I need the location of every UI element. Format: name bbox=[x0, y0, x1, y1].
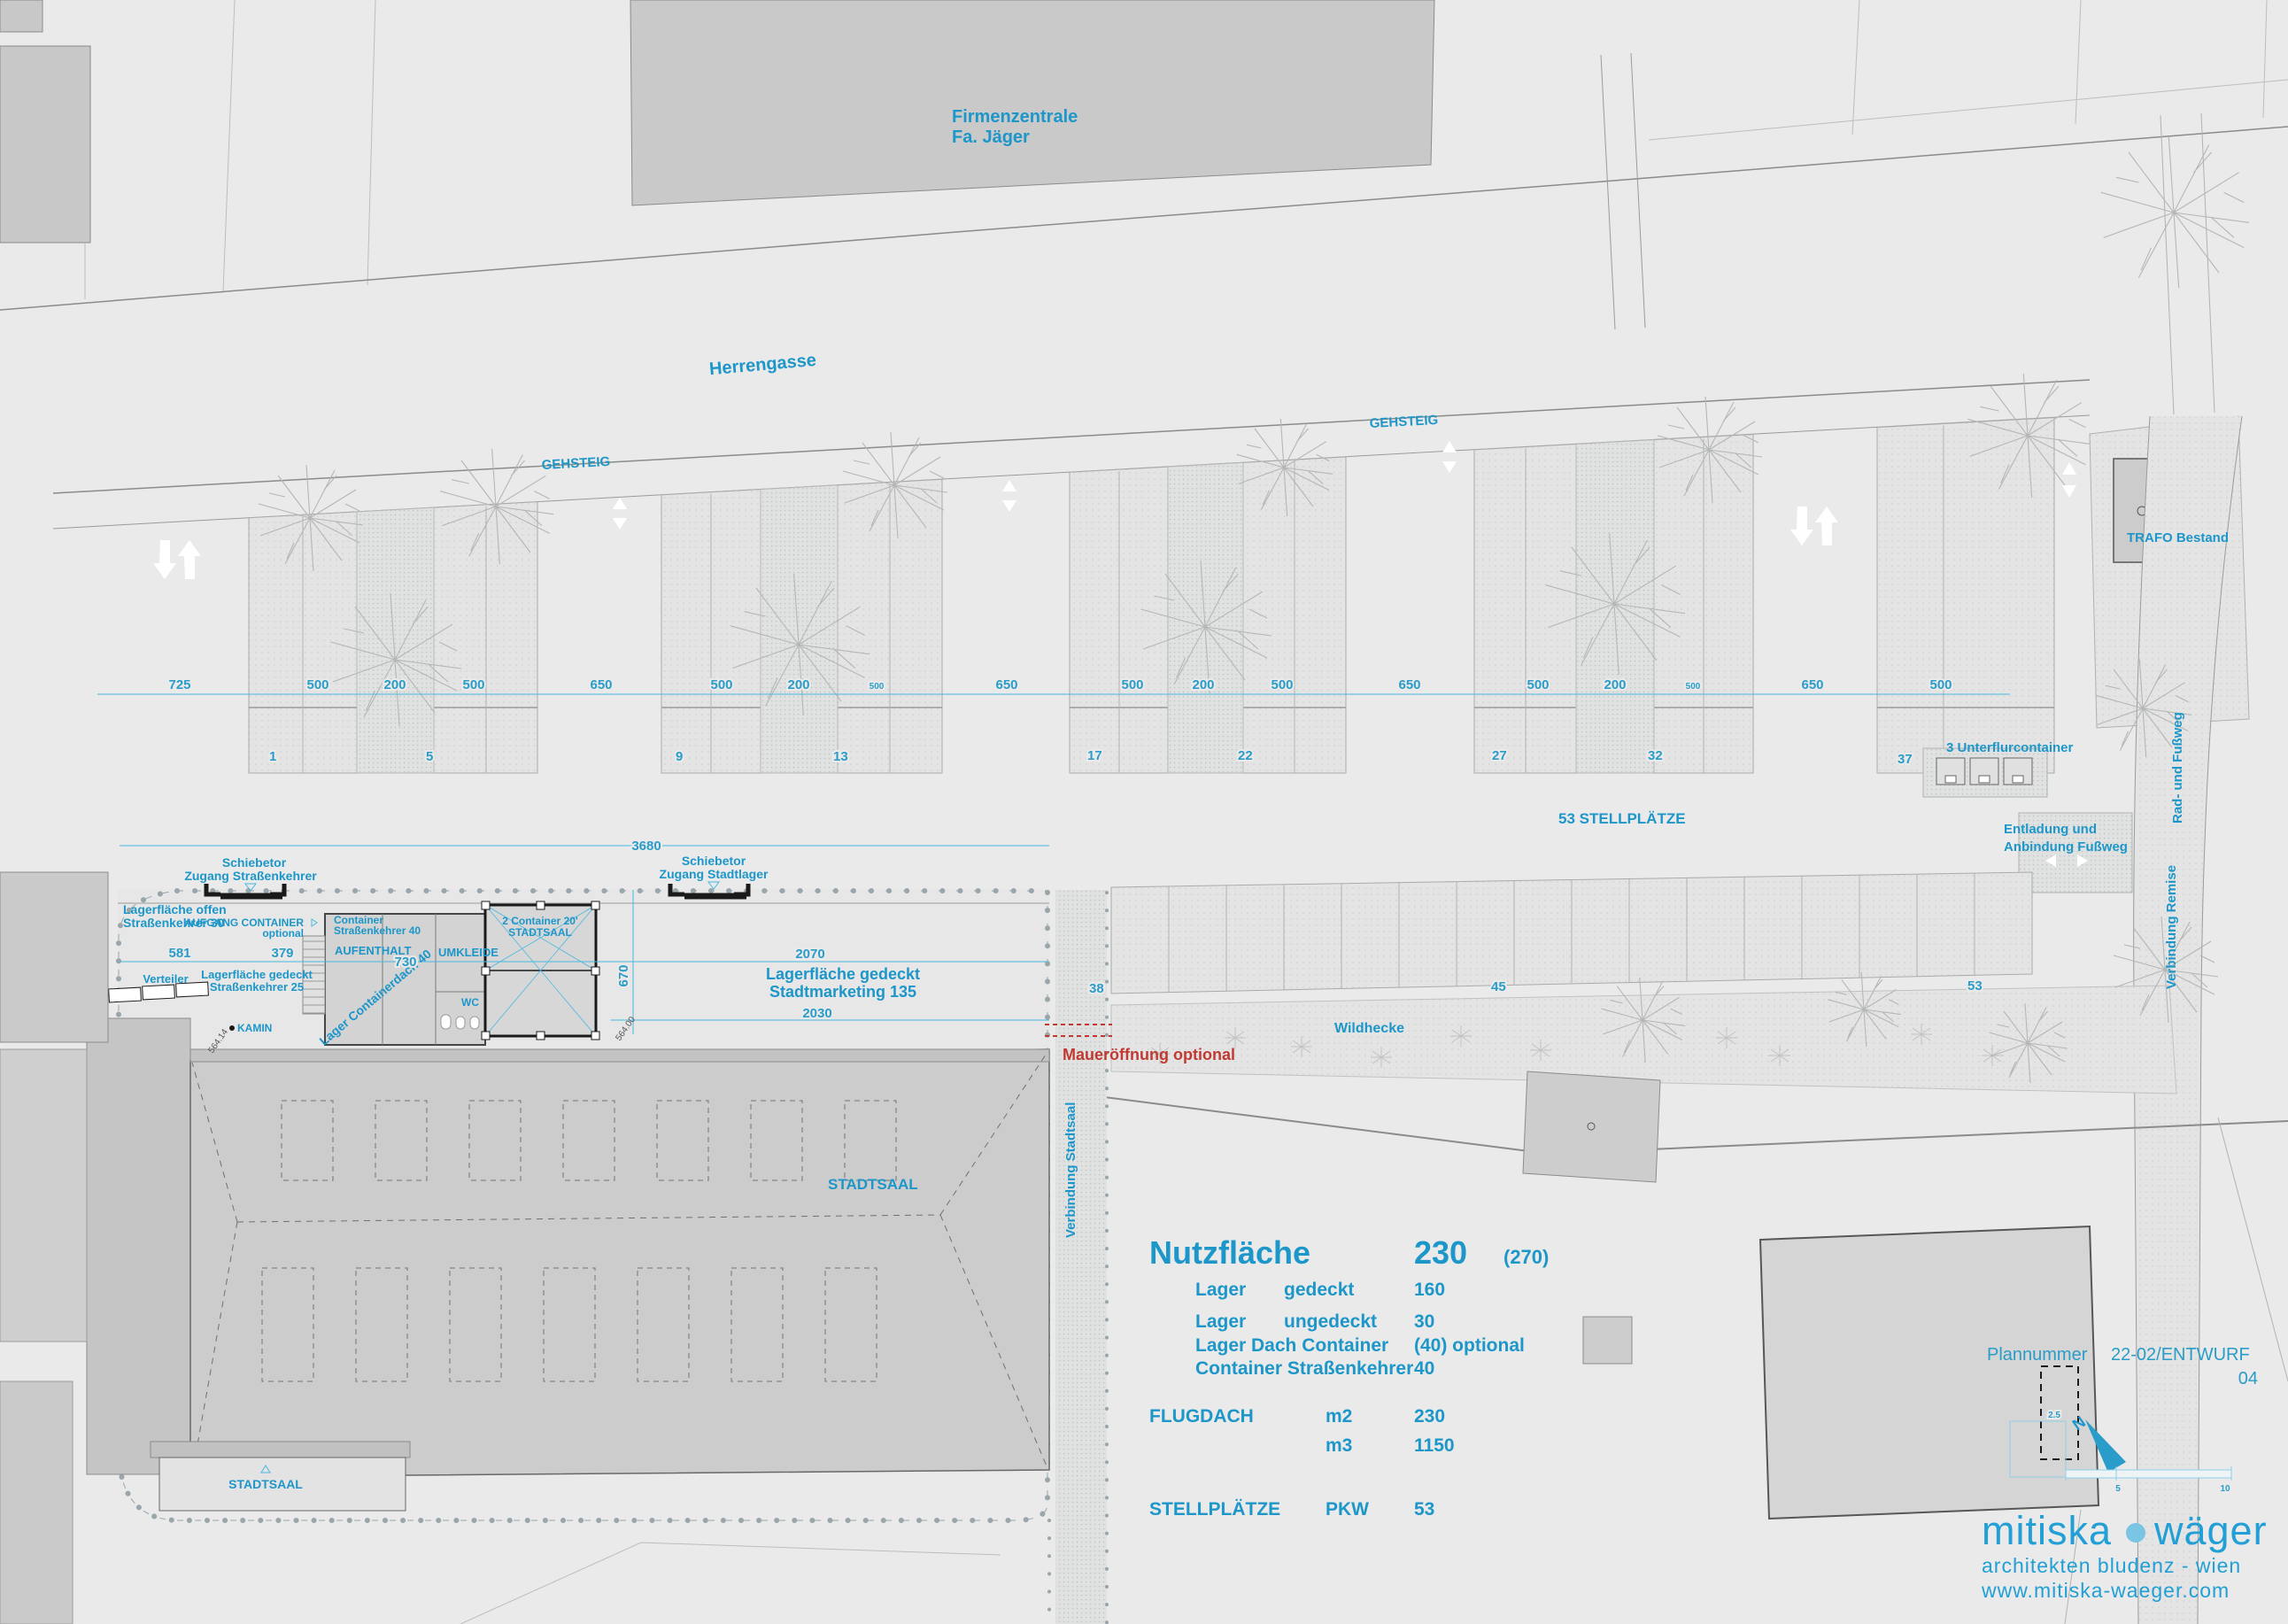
legend-block: Nutzfläche 230 (270) Lager gedeckt 160 L… bbox=[1149, 1234, 1549, 1520]
tree-strip bbox=[1168, 462, 1243, 773]
stall-number: 37 bbox=[1898, 752, 1913, 767]
stair-label-line2: optional bbox=[262, 927, 304, 940]
dimension-label: 500 bbox=[1121, 677, 1143, 692]
south-parking-row bbox=[1111, 872, 2032, 994]
dimension-label: 500 bbox=[1271, 677, 1293, 692]
stall-number: 13 bbox=[833, 749, 848, 764]
legend-row1-c3: 160 bbox=[1414, 1280, 1445, 1300]
parcel-lines-topright bbox=[1649, 0, 2288, 140]
gate2-label-line1: Schiebetor bbox=[682, 854, 746, 868]
legend-title-paren: (270) bbox=[1503, 1246, 1549, 1268]
dimension-label: 650 bbox=[1801, 677, 1823, 692]
arrow-down-icon bbox=[1790, 507, 1813, 545]
stall-number: 17 bbox=[1087, 748, 1102, 763]
company-label-line2: Fa. Jäger bbox=[952, 128, 1030, 147]
legend-flugdach-value2: 1150 bbox=[1414, 1435, 1455, 1456]
dimension-label: 500 bbox=[870, 682, 885, 692]
legend-flugdach-unit1: m2 bbox=[1326, 1406, 1352, 1427]
gate1-label-line2: Zugang Straßenkehrer bbox=[184, 869, 317, 883]
chimney-mark bbox=[229, 1025, 235, 1031]
legend-row4-c3: 40 bbox=[1414, 1358, 1434, 1379]
dimension-label: 500 bbox=[1527, 677, 1549, 692]
legend-title-value: 230 bbox=[1414, 1234, 1467, 1271]
south-stall-number: 45 bbox=[1491, 979, 1506, 994]
dimension-label: 200 bbox=[1604, 677, 1626, 692]
distributor-label: Verteiler bbox=[143, 972, 188, 986]
company-label-line1: Firmenzentrale bbox=[952, 107, 1078, 127]
arrow-up-small-icon bbox=[1002, 480, 1016, 491]
bike-path-label: Rad- und Fußweg bbox=[2170, 712, 2185, 824]
dimension-label: 200 bbox=[383, 677, 406, 692]
remise-label: Verbindung Remise bbox=[2164, 865, 2179, 989]
dimension-label: 725 bbox=[168, 677, 190, 692]
arrow-down-small-icon bbox=[1442, 461, 1457, 473]
logo-block: mitiska wäger architekten bludenz - wien… bbox=[1981, 1508, 2268, 1602]
covered-storage2-label-line2: Stadtmarketing 135 bbox=[769, 983, 916, 1001]
gate-marker-icon-2 bbox=[708, 882, 719, 889]
scale-mid-label: 5 bbox=[2115, 1484, 2121, 1494]
stall-number: 9 bbox=[676, 749, 683, 764]
dimension-label: 500 bbox=[710, 677, 732, 692]
tree-icon bbox=[2101, 137, 2249, 288]
dimension-label: 500 bbox=[1686, 682, 1701, 692]
building-west-3 bbox=[0, 1381, 73, 1624]
container-label-line2: Straßenkehrer 40 bbox=[334, 924, 421, 937]
legend-row2-c2: ungedeckt bbox=[1284, 1311, 1377, 1332]
covered-storage2-label-line1: Lagerfläche gedeckt bbox=[766, 965, 920, 983]
hall-link-label: Verbindung Stadtsaal bbox=[1063, 1102, 1078, 1238]
plan-number-label: Plannummer bbox=[1987, 1345, 2088, 1365]
legend-stellplaetze-unit: PKW bbox=[1326, 1499, 1369, 1520]
room-changing-label: UMKLEIDE bbox=[438, 946, 499, 959]
dim-379: 379 bbox=[271, 946, 293, 961]
legend-row1-c1: Lager bbox=[1195, 1280, 1246, 1300]
legend-row1-c2: gedeckt bbox=[1284, 1280, 1354, 1300]
arrow-down-icon bbox=[153, 540, 176, 579]
south-stall-number: 38 bbox=[1089, 981, 1104, 996]
arrow-up-icon bbox=[2062, 462, 2076, 475]
site-plan-page: Firmenzentrale Fa. Jäger Herrengasse GEH… bbox=[0, 0, 2288, 1624]
south-boundary-line bbox=[1055, 1091, 2288, 1154]
stadtsaal-north-wall bbox=[190, 1049, 1049, 1062]
legend-flugdach-unit2: m3 bbox=[1326, 1435, 1352, 1456]
open-storage-label-line1: Lagerfläche offen bbox=[123, 902, 227, 916]
trafo-label: TRAFO Bestand bbox=[2127, 530, 2229, 545]
side-road bbox=[1601, 53, 1645, 329]
tree-strip bbox=[357, 507, 434, 773]
dimension-label: 650 bbox=[1398, 677, 1420, 692]
south-stall-number: 53 bbox=[1967, 978, 1983, 994]
arrow-down-icon bbox=[2062, 485, 2076, 498]
dim-730: 730 bbox=[394, 955, 416, 970]
building-west-1 bbox=[0, 872, 108, 1042]
parking-block bbox=[1877, 418, 2054, 773]
stall-number: 5 bbox=[426, 749, 433, 764]
hall-entrance-label: STADTSAAL bbox=[228, 1477, 303, 1491]
hedge-zone bbox=[1055, 986, 2288, 1154]
legend-stellplaetze-label: STELLPLÄTZE bbox=[1149, 1499, 1280, 1520]
unloading-label-line1: Entladung und bbox=[2004, 822, 2097, 837]
plan-number-value: 22-02/ENTWURF bbox=[2111, 1345, 2250, 1365]
parking-total-label: 53 STELLPLÄTZE bbox=[1558, 810, 1686, 827]
container2-label-line1: 2 Container 20' bbox=[502, 915, 578, 927]
unloading-label-line2: Anbindung Fußweg bbox=[2004, 839, 2128, 855]
dim-581: 581 bbox=[168, 946, 190, 961]
logo-tagline: architekten bludenz - wien bbox=[1982, 1554, 2241, 1577]
dimension-label: 200 bbox=[1192, 677, 1214, 692]
scale-bar bbox=[2066, 1470, 2231, 1478]
dimension-label: 650 bbox=[590, 677, 612, 692]
hedge-label: Wildhecke bbox=[1334, 1021, 1404, 1036]
legend-flugdach-label: FLUGDACH bbox=[1149, 1406, 1254, 1427]
building-west-2 bbox=[0, 1049, 87, 1342]
dimension-label: 500 bbox=[306, 677, 329, 692]
stall-number: 32 bbox=[1648, 748, 1663, 763]
entrance-canopy bbox=[151, 1442, 410, 1458]
underfloor-containers bbox=[1936, 758, 2032, 785]
chimney-label: KAMIN bbox=[237, 1022, 272, 1034]
legend-row4-c1: Container Straßenkehrer bbox=[1195, 1358, 1413, 1379]
hall-label: STADTSAAL bbox=[828, 1176, 918, 1193]
plan-revision: 04 bbox=[2238, 1369, 2258, 1388]
dim-2030: 2030 bbox=[802, 1006, 831, 1021]
tree-strip bbox=[761, 485, 838, 773]
legend-row3-c1: Lager Dach Container bbox=[1195, 1335, 1388, 1356]
gate1-label-line1: Schiebetor bbox=[222, 855, 287, 870]
building-topleft-small bbox=[0, 0, 43, 32]
street-label: Herrengasse bbox=[708, 351, 817, 379]
dimension-label: 200 bbox=[787, 677, 809, 692]
legend-row2-c1: Lager bbox=[1195, 1311, 1246, 1332]
parcel-lines-top bbox=[85, 0, 375, 299]
logo-word1: mitiska bbox=[1982, 1508, 2112, 1553]
covered-storage1-label-line2: Straßenkehrer 25 bbox=[210, 980, 304, 994]
logo-word2: wäger bbox=[2153, 1508, 2268, 1553]
arrow-down-small-icon bbox=[1002, 500, 1016, 512]
covered-storage1-label-line1: Lagerfläche gedeckt bbox=[201, 968, 313, 981]
building-square-small bbox=[1583, 1317, 1632, 1364]
wall-opening-label: Maueröffnung optional bbox=[1063, 1046, 1235, 1063]
legend-title: Nutzfläche bbox=[1149, 1234, 1310, 1271]
room-wc-label: WC bbox=[461, 996, 479, 1009]
dim-670: 670 bbox=[616, 964, 631, 986]
logo-url: www.mitiska-waeger.com bbox=[1981, 1579, 2230, 1602]
parcel-line-bottom bbox=[460, 1543, 1001, 1624]
building-firmenzentrale bbox=[630, 0, 1434, 205]
legend-row3-c3: (40) optional bbox=[1414, 1335, 1525, 1356]
dimension-label: 650 bbox=[995, 677, 1017, 692]
arrow-up-icon bbox=[178, 540, 201, 579]
stall-number: 1 bbox=[269, 749, 276, 764]
legend-row2-c3: 30 bbox=[1414, 1311, 1434, 1332]
dimension-label: 500 bbox=[462, 677, 484, 692]
arrow-up-small-icon bbox=[613, 498, 627, 509]
building-topleft bbox=[0, 46, 90, 243]
scale-end-label: 10 bbox=[2220, 1484, 2230, 1494]
building-stadtsaal bbox=[190, 1049, 1049, 1477]
container2-label-line2: STADTSAAL bbox=[508, 926, 572, 939]
building-mid-small bbox=[1523, 1071, 1660, 1182]
gate2-label-line2: Zugang Stadtlager bbox=[660, 867, 769, 881]
arrow-down-small-icon bbox=[613, 518, 627, 530]
building-bottom-right bbox=[1760, 1226, 2099, 1519]
dim-3680: 3680 bbox=[631, 839, 661, 854]
legend-stellplaetze-value: 53 bbox=[1414, 1499, 1434, 1520]
logo-dot-icon bbox=[2126, 1523, 2145, 1543]
hall-west-annex bbox=[87, 1018, 190, 1474]
dim-2070: 2070 bbox=[795, 947, 824, 962]
hall-link-corridor bbox=[1055, 890, 1107, 1624]
stall-number: 27 bbox=[1492, 748, 1507, 763]
arrow-up-icon bbox=[1815, 507, 1838, 545]
legend-flugdach-value1: 230 bbox=[1414, 1406, 1445, 1427]
site-plan-drawing: Firmenzentrale Fa. Jäger Herrengasse GEH… bbox=[0, 0, 2288, 1624]
wc-fixtures bbox=[441, 1015, 479, 1029]
underfloor-label: 3 Unterflurcontainer bbox=[1946, 740, 2074, 755]
dimension-label: 500 bbox=[1929, 677, 1952, 692]
scale-grid-label: 2.5 bbox=[2048, 1411, 2060, 1420]
stall-number: 22 bbox=[1238, 748, 1253, 763]
tree-strip bbox=[1576, 440, 1654, 773]
